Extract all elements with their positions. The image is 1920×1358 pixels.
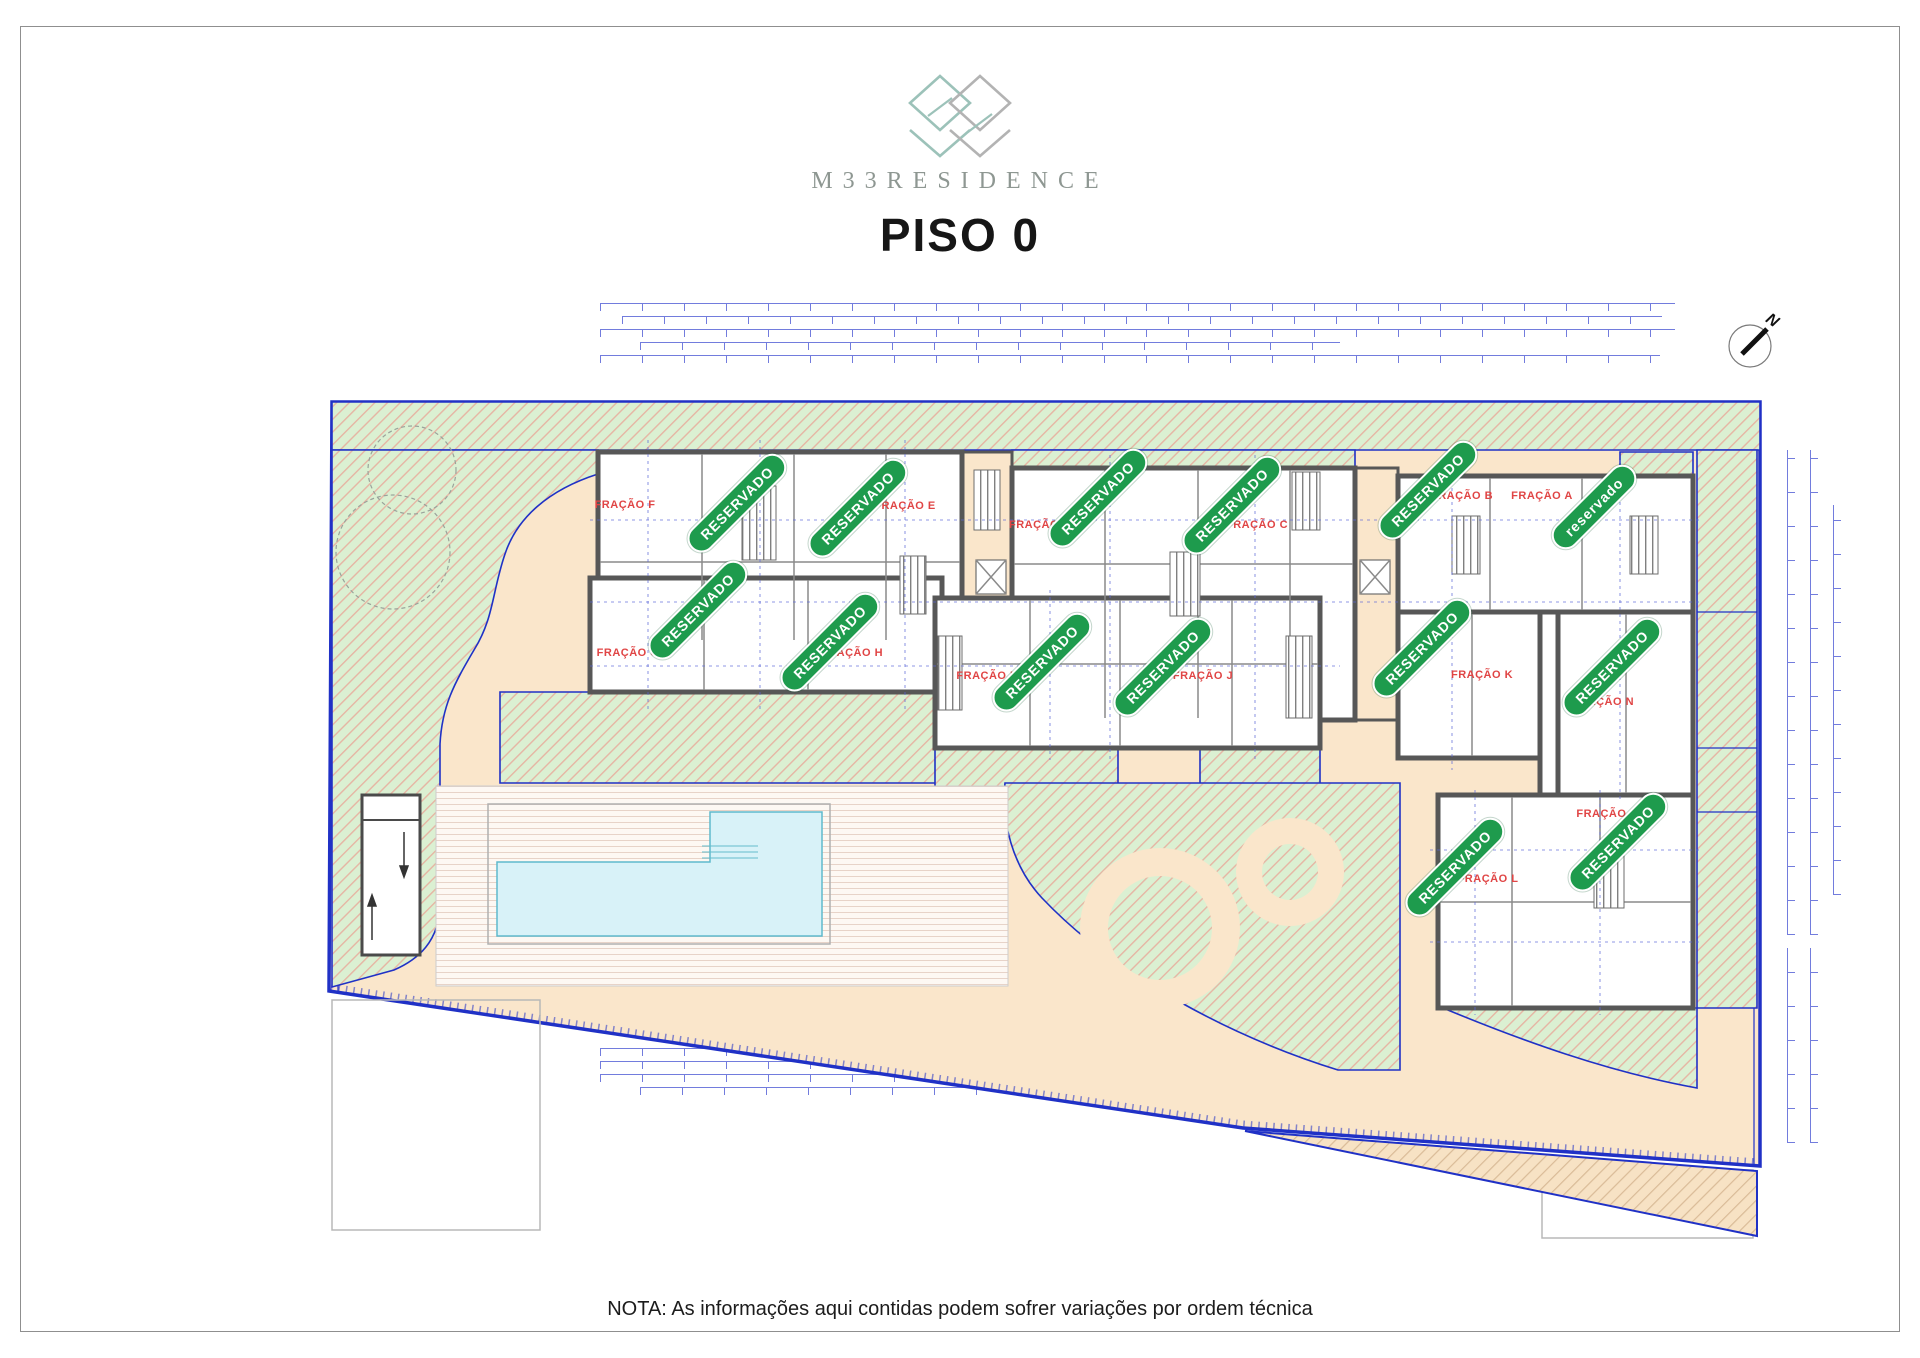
building-units-i-j: [935, 598, 1320, 748]
building-units-g-h: [590, 578, 942, 692]
floor-plan: [0, 0, 1920, 1358]
garage-structure: [362, 795, 420, 955]
pool-deck: [436, 786, 1008, 986]
building-unit-k: [1398, 612, 1540, 758]
footer-note: NOTA: As informações aqui contidas podem…: [0, 1298, 1920, 1321]
page: M33RESIDENCE PISO 0 N: [0, 0, 1920, 1358]
